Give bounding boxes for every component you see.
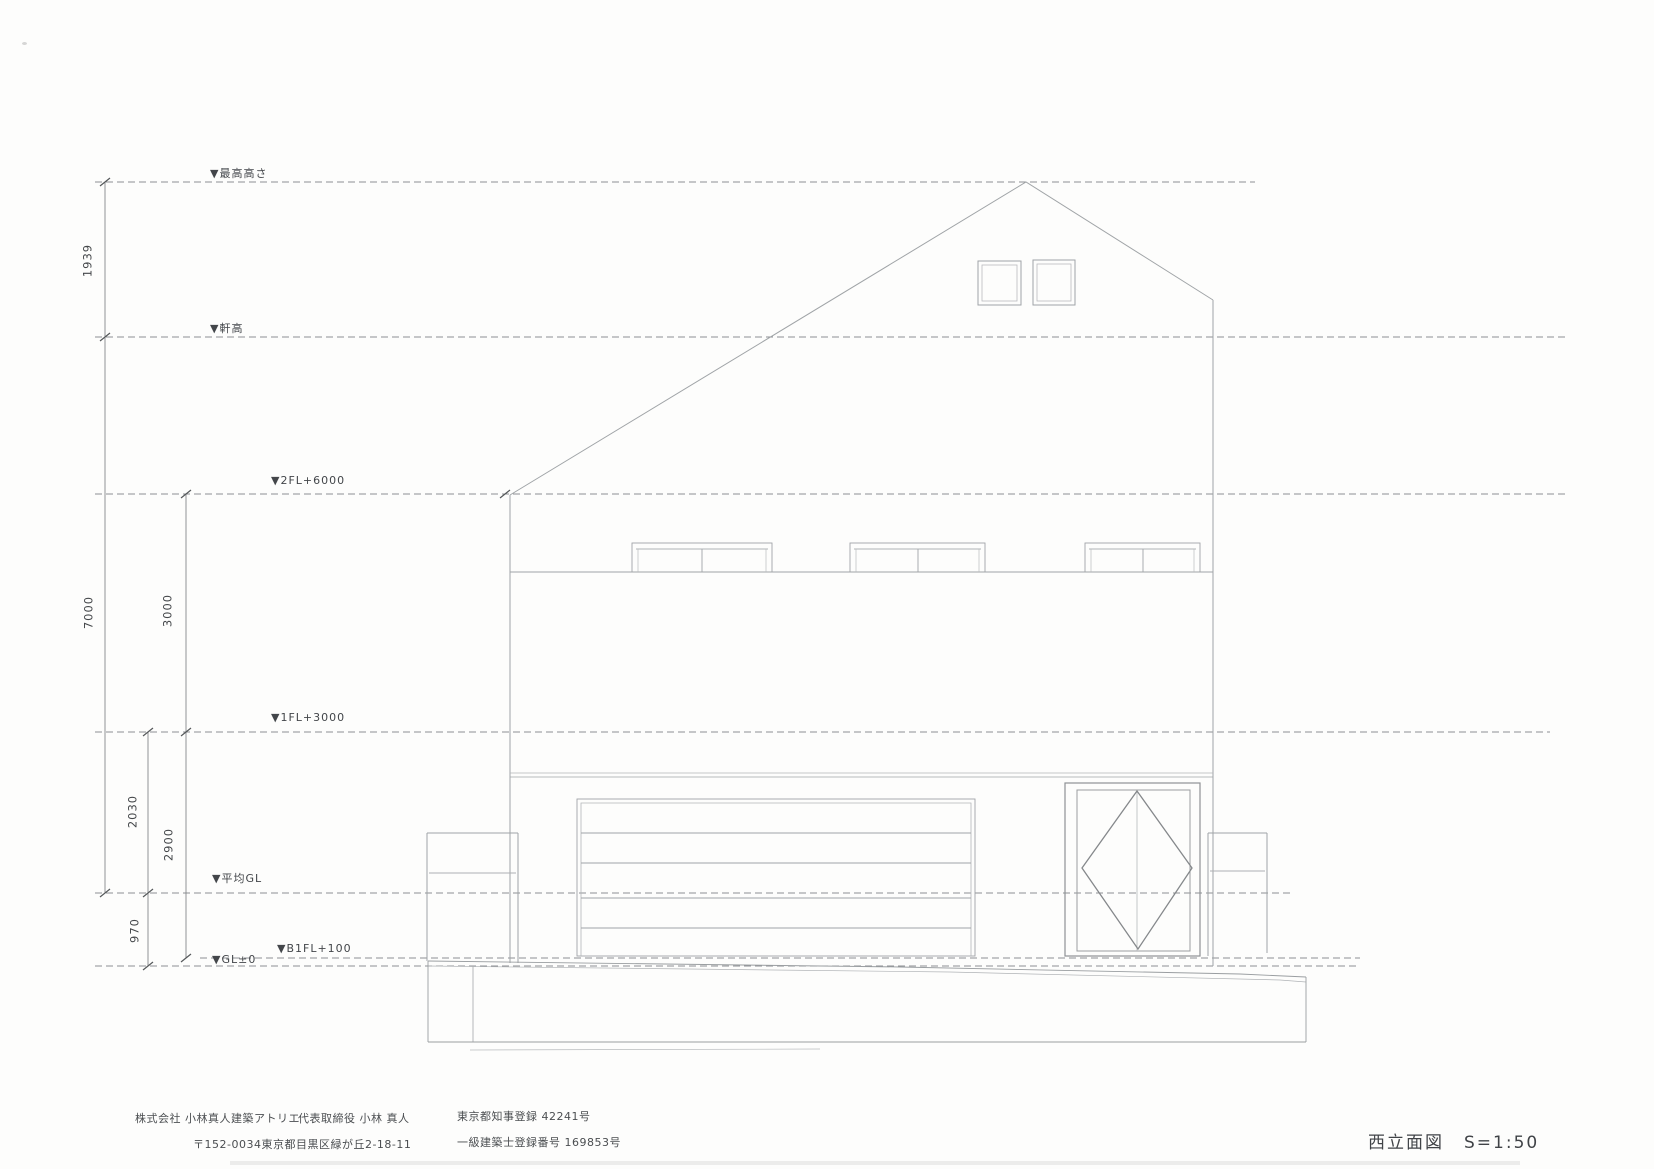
footer-license-governor: 東京都知事登録 42241号 bbox=[457, 1108, 591, 1124]
ground-surface-line bbox=[428, 961, 1306, 977]
level-label-b1fl: ▼B1FL+100 bbox=[277, 943, 352, 954]
gable-window-right bbox=[1033, 260, 1075, 305]
scan-speck bbox=[22, 42, 27, 45]
footer-license-architect: 一級建築士登録番号 169853号 bbox=[457, 1134, 621, 1150]
footer-address: 〒152-0034東京都目黒区緑が丘2-18-11 bbox=[193, 1136, 411, 1152]
right-gate-post bbox=[1208, 833, 1267, 956]
scan-streak bbox=[230, 1161, 1520, 1165]
dim-2030: 2030 bbox=[127, 790, 140, 834]
foundation-bottom-line-2 bbox=[470, 1049, 820, 1050]
drawing-title: 西立面図 bbox=[1368, 1128, 1444, 1153]
dim-2900: 2900 bbox=[163, 823, 176, 867]
level-label-gl0: ▼GL±0 bbox=[212, 954, 256, 965]
dim-1939: 1939 bbox=[82, 239, 95, 283]
elevation-sheet: ▼最高高さ ▼軒高 ▼2FL+6000 ▼1FL+3000 ▼平均GL ▼B1F… bbox=[0, 0, 1654, 1169]
garage-door bbox=[577, 799, 975, 956]
level-label-max-height: ▼最高高さ bbox=[210, 168, 267, 179]
second-floor-windows bbox=[632, 543, 1200, 572]
footer-company: 株式会社 小林真人建築アトリエ bbox=[135, 1110, 300, 1126]
drawing-title-block: 西立面図 S=1:50 bbox=[1368, 1128, 1539, 1153]
level-label-avg-gl: ▼平均GL bbox=[212, 873, 262, 884]
left-gate-post bbox=[427, 833, 518, 963]
gable-windows bbox=[978, 260, 1075, 305]
dim-3000: 3000 bbox=[162, 589, 175, 633]
ground-foundation bbox=[428, 961, 1306, 1050]
drawing-scale: S=1:50 bbox=[1464, 1133, 1539, 1153]
ground-surface-line-2 bbox=[428, 966, 1306, 982]
level-label-1fl: ▼1FL+3000 bbox=[271, 712, 345, 723]
roof-outline bbox=[510, 182, 1213, 495]
building-outline bbox=[510, 182, 1213, 966]
fl2-window-group-2 bbox=[850, 543, 985, 572]
dim-7000: 7000 bbox=[83, 591, 96, 635]
fl2-window-group-3 bbox=[1085, 543, 1200, 572]
entry-door bbox=[1065, 783, 1200, 956]
level-lines bbox=[95, 182, 1565, 966]
footer-representative: 代表取締役 小林 真人 bbox=[298, 1110, 410, 1126]
dim-970: 970 bbox=[129, 909, 142, 953]
level-label-2fl: ▼2FL+6000 bbox=[271, 475, 345, 486]
level-label-eave: ▼軒高 bbox=[210, 323, 243, 334]
gable-window-left bbox=[978, 261, 1021, 305]
